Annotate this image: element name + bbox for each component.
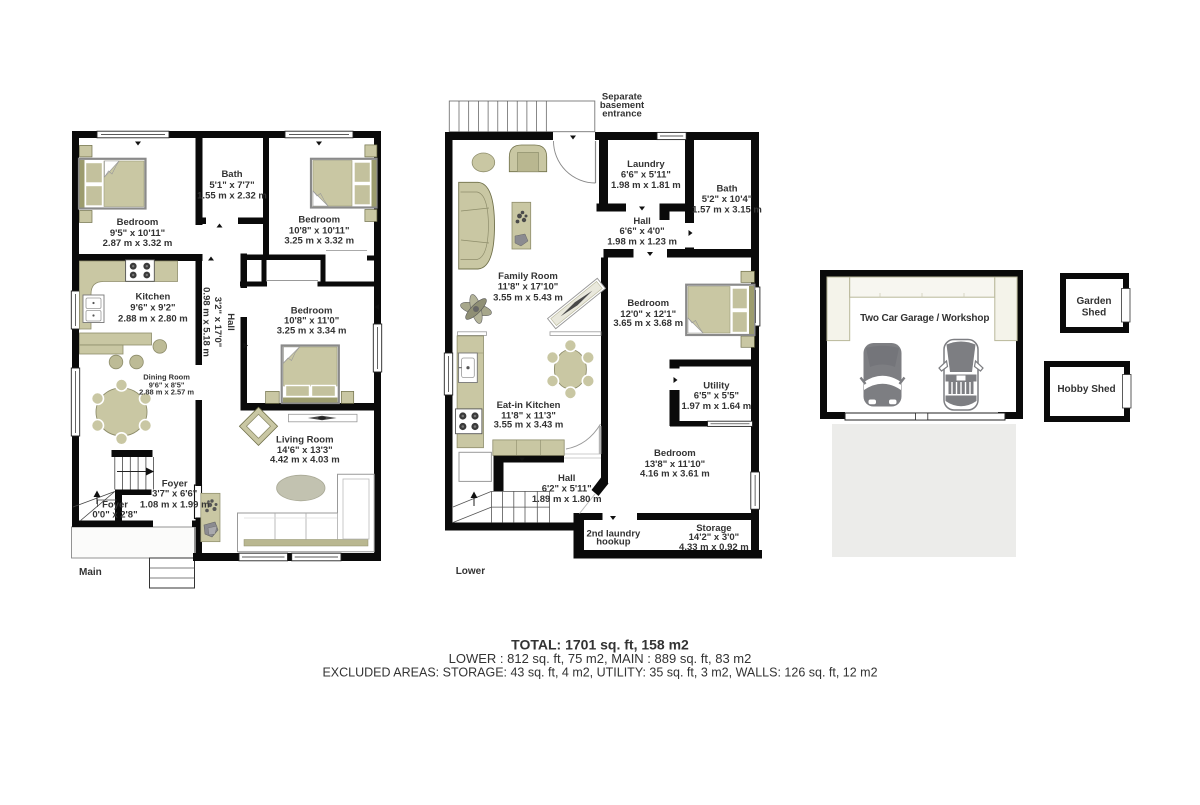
- svg-text:2.88 m x 2.80 m: 2.88 m x 2.80 m: [118, 313, 188, 324]
- svg-text:Bedroom: Bedroom: [654, 448, 696, 459]
- svg-text:4.33 m x 0.92 m: 4.33 m x 0.92 m: [679, 542, 749, 553]
- svg-text:Bedroom: Bedroom: [298, 215, 340, 226]
- svg-text:6'6" x 4'0": 6'6" x 4'0": [619, 226, 664, 237]
- svg-text:Bath: Bath: [221, 169, 242, 180]
- svg-text:3.25 m x 3.32 m: 3.25 m x 3.32 m: [284, 235, 354, 246]
- svg-text:Bedroom: Bedroom: [117, 217, 159, 228]
- svg-text:entrance: entrance: [602, 109, 642, 120]
- svg-text:3'2" x 17'0": 3'2" x 17'0": [212, 297, 223, 348]
- svg-text:9'6" x 9'2": 9'6" x 9'2": [130, 302, 175, 313]
- svg-text:Garden: Garden: [1076, 296, 1111, 307]
- svg-text:Hobby Shed: Hobby Shed: [1057, 384, 1115, 395]
- svg-text:6'6" x 5'11": 6'6" x 5'11": [621, 169, 671, 180]
- svg-text:Hall: Hall: [558, 473, 575, 484]
- svg-text:3.65 m x 3.68 m: 3.65 m x 3.68 m: [613, 318, 683, 329]
- svg-text:4.42 m x 4.03 m: 4.42 m x 4.03 m: [270, 455, 340, 466]
- svg-text:1.89 m x 1.80 m: 1.89 m x 1.80 m: [532, 494, 602, 505]
- svg-text:Living Room: Living Room: [276, 435, 334, 446]
- svg-text:5'1" x 7'7": 5'1" x 7'7": [209, 180, 254, 191]
- svg-text:Lower: Lower: [456, 566, 486, 577]
- svg-text:3.25 m x 3.34 m: 3.25 m x 3.34 m: [277, 326, 347, 337]
- svg-text:hookup: hookup: [596, 537, 630, 548]
- svg-text:6'5" x 5'5": 6'5" x 5'5": [694, 390, 739, 401]
- svg-text:1.08 m x 1.99 m: 1.08 m x 1.99 m: [140, 500, 210, 511]
- svg-text:Bedroom: Bedroom: [627, 298, 669, 309]
- svg-text:Laundry: Laundry: [627, 159, 665, 170]
- svg-text:1.55 m x 2.32 m: 1.55 m x 2.32 m: [197, 191, 267, 202]
- svg-text:Shed: Shed: [1082, 308, 1106, 319]
- svg-text:2.88 m x 2.57 m: 2.88 m x 2.57 m: [139, 388, 194, 397]
- svg-text:Family Room: Family Room: [498, 271, 558, 282]
- svg-text:1.98 m x 1.23 m: 1.98 m x 1.23 m: [607, 237, 677, 248]
- svg-text:3.55 m x 5.43 m: 3.55 m x 5.43 m: [493, 292, 563, 303]
- svg-text:Kitchen: Kitchen: [135, 292, 170, 303]
- svg-text:2.87 m x 3.32 m: 2.87 m x 3.32 m: [103, 238, 173, 249]
- svg-text:Eat-in Kitchen: Eat-in Kitchen: [497, 400, 561, 411]
- svg-text:3'7" x 6'6": 3'7" x 6'6": [152, 488, 197, 499]
- svg-text:4.16 m x 3.61 m: 4.16 m x 3.61 m: [640, 469, 710, 480]
- svg-text:Main: Main: [79, 567, 102, 578]
- svg-text:EXCLUDED AREAS: STORAGE: 43 sq: EXCLUDED AREAS: STORAGE: 43 sq. ft, 4 m2…: [322, 666, 877, 680]
- svg-text:11'8" x 17'10": 11'8" x 17'10": [498, 282, 559, 293]
- svg-text:1.57 m x 3.15 m: 1.57 m x 3.15 m: [692, 204, 762, 215]
- svg-text:1.97 m x 1.64 m: 1.97 m x 1.64 m: [682, 401, 752, 412]
- svg-text:Two Car Garage / Workshop: Two Car Garage / Workshop: [860, 313, 989, 324]
- svg-text:3.55 m x 3.43 m: 3.55 m x 3.43 m: [494, 419, 564, 430]
- svg-text:0.98 m x 5.18 m: 0.98 m x 5.18 m: [201, 287, 212, 357]
- svg-text:Hall: Hall: [225, 313, 236, 330]
- svg-text:1.98 m x 1.81 m: 1.98 m x 1.81 m: [611, 180, 681, 191]
- svg-text:LOWER : 812 sq. ft, 75 m2, MAI: LOWER : 812 sq. ft, 75 m2, MAIN : 889 sq…: [449, 651, 752, 666]
- svg-text:0'0" x 2'8": 0'0" x 2'8": [92, 510, 137, 521]
